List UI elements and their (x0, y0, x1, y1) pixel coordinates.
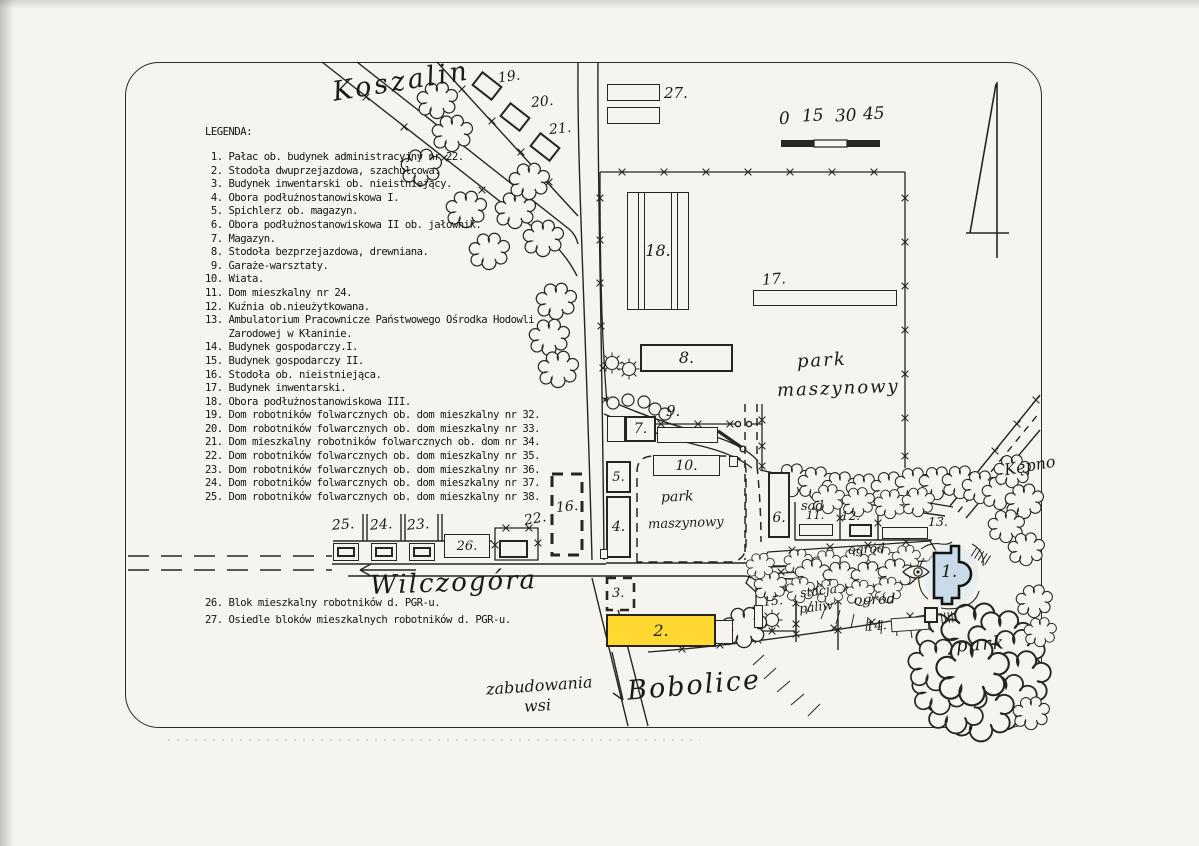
building-label-9: 9. (666, 404, 680, 419)
legend-item: 6. Obora podłużnostanowiskowa II ob. jał… (205, 219, 540, 233)
building-14-annex (924, 607, 938, 623)
building-label-7: 7. (634, 422, 647, 436)
building-7: 7. (625, 416, 656, 442)
building-label-1: 1. (941, 564, 957, 581)
building-label-6: 6. (772, 511, 785, 525)
area-label-park-maszynowy-lower-1: park (661, 489, 694, 504)
legend-item: 5. Spichlerz ob. magazyn. (205, 205, 540, 219)
area-label-park-maszynowy-lower-2: maszynowy (648, 516, 724, 532)
building-label-22: 22. (523, 510, 547, 528)
building-label-3: 3. (612, 587, 624, 600)
building-11 (799, 524, 833, 536)
building-15-shed (754, 605, 763, 628)
building-23-core (413, 547, 431, 557)
legend-item: 18. Obora podłużnostanowiskowa III. (205, 396, 540, 410)
scale-bar-graphic (781, 140, 880, 147)
area-label-park-maszynowy-upper-2: maszynowy (777, 378, 900, 400)
building-label-23: 23. (407, 517, 430, 533)
building-6: 6. (768, 472, 790, 538)
legend-list-bottom: 26. Blok mieszkalny robotników d. PGR-u.… (205, 597, 511, 631)
building-label-27: 27. (664, 86, 688, 101)
building-label-18: 18. (645, 243, 670, 259)
building-12 (849, 524, 872, 537)
building-10-annex (729, 456, 738, 467)
legend-item: 4. Obora podłużnostanowiskowa I. (205, 192, 540, 206)
building-label-25: 25. (332, 517, 355, 533)
building-10: 10. (653, 455, 720, 476)
legend-title: LEGENDA: (205, 126, 540, 138)
legend-item: 8. Stodoła bezprzejazdowa, drewniana. (205, 246, 540, 260)
building-2-highlighted: 2. (606, 614, 716, 647)
legend-item: 17. Budynek inwentarski. (205, 382, 540, 396)
building-18: 18. (627, 192, 689, 310)
building-17 (753, 290, 897, 306)
legend-item: 3. Budynek inwentarski ob. nieistniejący… (205, 178, 540, 192)
building-25-core (337, 547, 355, 557)
building-24-core (375, 547, 393, 557)
legend-item: 16. Stodoła ob. nieistniejąca. (205, 369, 540, 383)
legend-item: 19. Dom robotników folwarcznych ob. dom … (205, 409, 540, 423)
building-27b (607, 107, 660, 124)
building-7-annex (607, 416, 625, 442)
building-label-4: 4. (612, 520, 625, 534)
area-label-ogrod-lower: ogród (854, 592, 896, 607)
building-13 (882, 527, 928, 539)
building-label-11: 11. (806, 510, 824, 522)
legend-item: 24. Dom robotników folwarcznych ob. dom … (205, 477, 540, 491)
building-18-aisle-line (677, 193, 678, 309)
legend-item: 9. Garaże-warsztaty. (205, 260, 540, 274)
building-label-14: 14. (865, 619, 887, 634)
scanned-site-plan: LEGENDA: 1. Pałac ob. budynek administra… (0, 0, 1199, 846)
building-18-aisle-line (671, 193, 672, 309)
building-label-10: 10. (675, 459, 697, 473)
building-4-annex (600, 549, 608, 559)
building-5: 5. (606, 461, 631, 493)
legend-item: 27. Osiedle bloków mieszkalnych robotnik… (205, 614, 511, 631)
building-23 (409, 543, 435, 561)
building-9 (657, 427, 718, 443)
legend-item: Zarodowej w Kłaninie. (205, 328, 540, 342)
scale-tick-0: 0 (779, 111, 791, 129)
building-26: 26. (444, 534, 490, 558)
area-label-ogrod-upper: ogród (848, 542, 886, 556)
building-18-aisle-line (638, 193, 639, 309)
legend-item: 10. Wiata. (205, 273, 540, 287)
legend-item: 1. Pałac ob. budynek administracyjny nr … (205, 151, 540, 165)
north-arrow (966, 82, 1009, 258)
building-label-16: 16. (555, 499, 578, 515)
legend-item: 13. Ambulatorium Pracownicze Państwowego… (205, 314, 540, 328)
building-label-20: 20. (530, 94, 554, 110)
building-label-24: 24. (370, 517, 393, 533)
building-4: 4. (606, 496, 631, 558)
map-linework (0, 0, 1199, 846)
building-8: 8. (640, 344, 733, 372)
legend-item: 14. Budynek gospodarczy.I. (205, 341, 540, 355)
building-label-21: 21. (548, 121, 572, 137)
building-2-annex (715, 620, 733, 644)
place-label-wilczogora: Wilczogóra (370, 567, 538, 599)
legend-list: 1. Pałac ob. budynek administracyjny nr … (205, 151, 540, 504)
legend-item: 15. Budynek gospodarczy II. (205, 355, 540, 369)
legend-item: 12. Kuźnia ob.nieużytkowana. (205, 301, 540, 315)
legend-item: 20. Dom robotników folwarcznych ob. dom … (205, 423, 540, 437)
building-label-26: 26. (457, 540, 478, 553)
building-label-19: 19. (497, 69, 521, 86)
building-22 (499, 540, 528, 558)
scale-tick-15: 15 (802, 107, 825, 125)
legend-item: 11. Dom mieszkalny nr 24. (205, 287, 540, 301)
building-25 (333, 543, 359, 561)
area-label-park: park (955, 634, 1006, 655)
building-label-15: 15. (762, 594, 783, 609)
building-label-12: 12. (841, 510, 860, 522)
building-label-2: 2. (653, 623, 668, 639)
building-label-13: 13. (928, 516, 948, 529)
building-label-8: 8. (679, 350, 694, 366)
building-27a (607, 84, 660, 101)
legend-item: 26. Blok mieszkalny robotników d. PGR-u. (205, 597, 511, 614)
legend-item: 25. Dom robotników folwarcznych ob. dom … (205, 491, 540, 505)
legend-item: 23. Dom robotników folwarcznych ob. dom … (205, 464, 540, 478)
building-label-5: 5. (612, 471, 624, 484)
area-label-park-maszynowy-upper-1: park (797, 351, 848, 372)
legend-block-bottom: 26. Blok mieszkalny robotników d. PGR-u.… (205, 597, 511, 631)
legend-block: LEGENDA: 1. Pałac ob. budynek administra… (205, 126, 540, 504)
building-label-17: 17. (762, 271, 787, 288)
legend-item: 7. Magazyn. (205, 233, 540, 247)
place-label-wsi: wsi (523, 697, 551, 715)
legend-item: 2. Stodoła dwuprzejazdowa, szachulcowa. (205, 165, 540, 179)
legend-item: 21. Dom mieszkalny robotników folwarczny… (205, 436, 540, 450)
building-24 (371, 543, 397, 561)
scale-tick-30: 30 (835, 107, 858, 125)
legend-item: 22. Dom robotników folwarcznych ob. dom … (205, 450, 540, 464)
scale-tick-45: 45 (863, 105, 886, 123)
